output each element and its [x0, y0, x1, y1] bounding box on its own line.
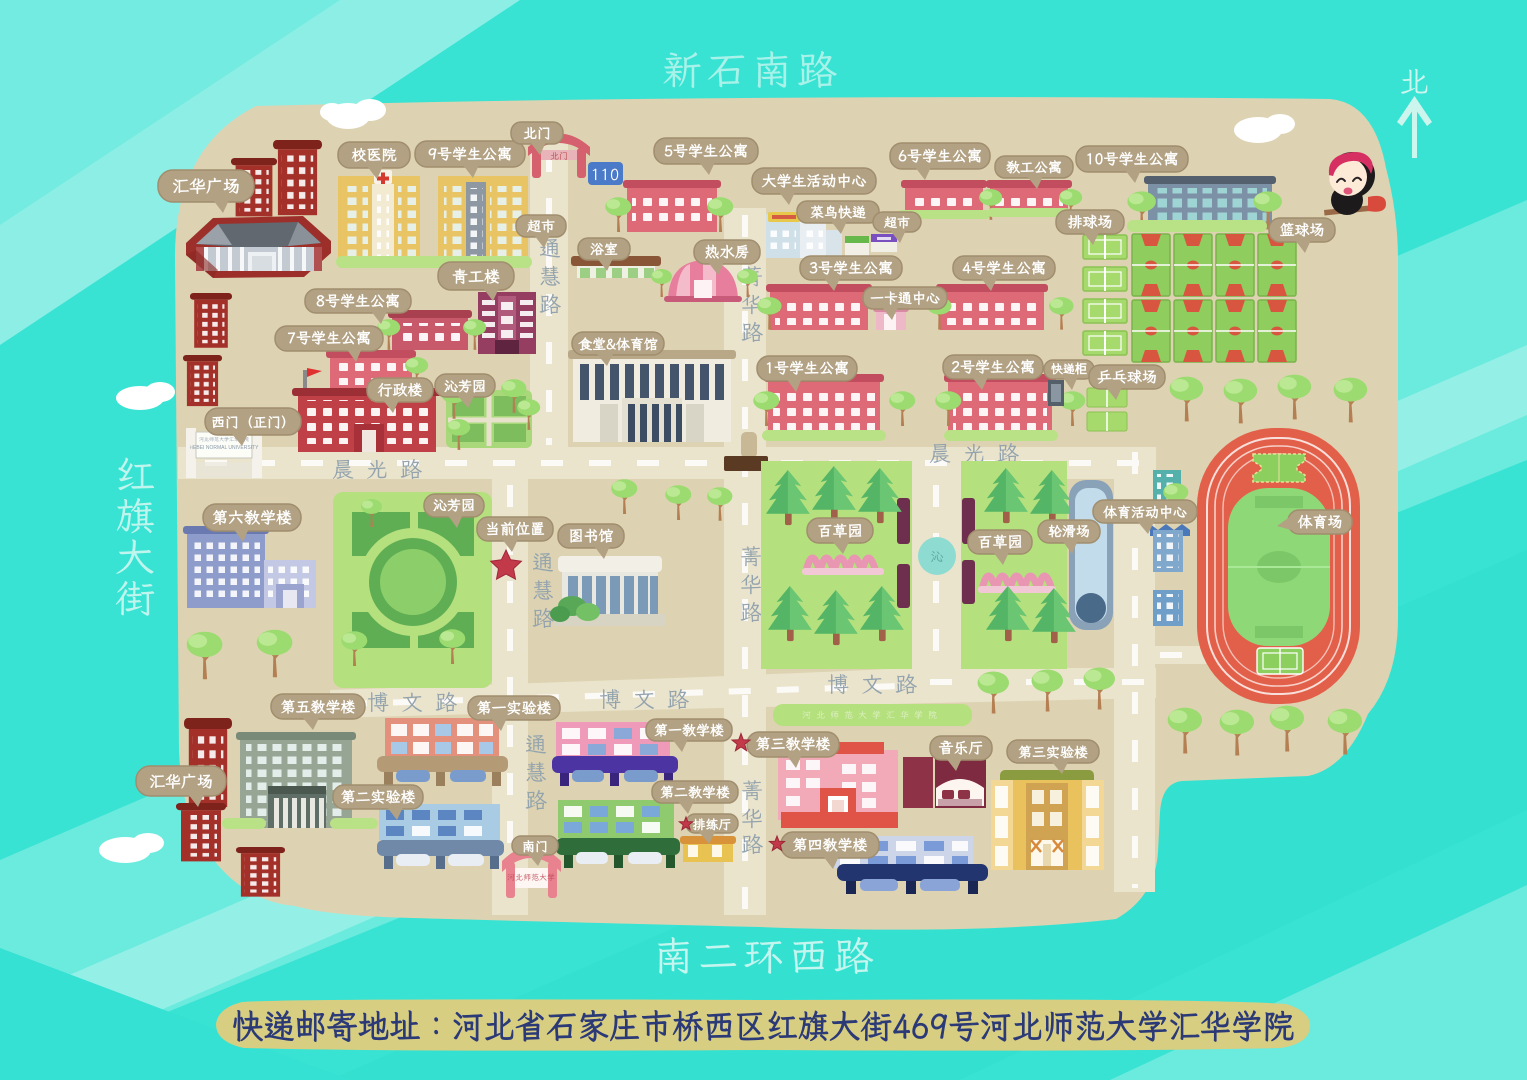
svg-text:排球场: 排球场 [1067, 213, 1112, 232]
svg-text:图书馆: 图书馆 [568, 527, 613, 546]
svg-text:百草园: 百草园 [977, 533, 1022, 552]
svg-text:6号学生公寓: 6号学生公寓 [898, 147, 982, 166]
svg-text:路: 路 [741, 830, 763, 859]
svg-text:第六教学楼: 第六教学楼 [212, 506, 292, 528]
svg-text:热水房: 热水房 [704, 243, 749, 262]
svg-text:音乐厅: 音乐厅 [938, 739, 983, 758]
svg-text:百草园: 百草园 [817, 522, 862, 541]
svg-text:浴室: 浴室 [590, 240, 618, 258]
svg-text:5号学生公寓: 5号学生公寓 [664, 142, 748, 161]
svg-text:乒乓球场: 乒乓球场 [1097, 368, 1157, 387]
svg-text:8号学生公寓: 8号学生公寓 [316, 292, 400, 311]
svg-text:校医院: 校医院 [351, 146, 396, 165]
svg-text:快递柜: 快递柜 [1051, 362, 1087, 377]
svg-text:当前位置: 当前位置 [485, 520, 545, 539]
svg-text:行政楼: 行政楼 [377, 381, 422, 400]
svg-text:南二环西路: 南二环西路 [654, 930, 879, 982]
svg-text:汇华广场: 汇华广场 [149, 770, 213, 792]
svg-text:一卡通中心: 一卡通中心 [870, 289, 940, 307]
svg-text:华: 华 [740, 570, 762, 599]
svg-text:华: 华 [741, 804, 763, 833]
svg-text:慧: 慧 [532, 576, 554, 605]
svg-text:河北师范大学汇华学院: 河北师范大学汇华学院 [802, 709, 942, 721]
svg-text:博文路: 博文路 [827, 670, 929, 699]
svg-text:2号学生公寓: 2号学生公寓 [951, 358, 1035, 377]
svg-text:汇华广场: 汇华广场 [172, 174, 240, 197]
svg-text:第一教学楼: 第一教学楼 [654, 721, 724, 739]
svg-text:河北师范大学: 河北师范大学 [507, 873, 555, 883]
svg-text:食堂&体育馆: 食堂&体育馆 [578, 335, 658, 353]
svg-text:菁: 菁 [740, 542, 762, 571]
svg-text:第三教学楼: 第三教学楼 [755, 735, 830, 754]
svg-text:第一实验楼: 第一实验楼 [476, 699, 551, 718]
svg-text:体育活动中心: 体育活动中心 [1103, 503, 1187, 521]
svg-text:路: 路 [539, 290, 561, 319]
svg-text:博文路: 博文路 [367, 688, 469, 717]
svg-text:快递邮寄地址：河北省石家庄市桥西区红旗大街469号河北师范大: 快递邮寄地址：河北省石家庄市桥西区红旗大街469号河北师范大学汇华学院 [232, 1003, 1294, 1048]
svg-text:9号学生公寓: 9号学生公寓 [428, 145, 512, 164]
svg-text:慧: 慧 [525, 758, 547, 787]
svg-text:路: 路 [532, 604, 554, 633]
svg-text:北门: 北门 [550, 150, 568, 162]
svg-text:青工楼: 青工楼 [452, 265, 500, 287]
svg-text:排练厅: 排练厅 [692, 816, 731, 833]
svg-text:10号学生公寓: 10号学生公寓 [1085, 150, 1178, 169]
svg-text:沁芳园: 沁芳园 [444, 377, 486, 395]
svg-text:轮滑场: 轮滑场 [1048, 522, 1090, 540]
svg-text:HEBEI NORMAL UNIVERSITY: HEBEI NORMAL UNIVERSITY [190, 445, 260, 451]
svg-text:体育场: 体育场 [1297, 513, 1342, 532]
svg-text:慧: 慧 [539, 262, 561, 291]
svg-text:沁芳园: 沁芳园 [433, 496, 475, 514]
svg-text:菁: 菁 [741, 776, 763, 805]
svg-text:第五教学楼: 第五教学楼 [280, 698, 355, 717]
svg-text:110: 110 [591, 163, 620, 185]
svg-text:新石南路: 新石南路 [662, 44, 842, 96]
svg-text:第二教学楼: 第二教学楼 [660, 783, 730, 801]
svg-text:7号学生公寓: 7号学生公寓 [287, 329, 371, 348]
svg-text:菜鸟快递: 菜鸟快递 [810, 203, 866, 221]
svg-text:篮球场: 篮球场 [1279, 221, 1324, 240]
svg-text:第三实验楼: 第三实验楼 [1018, 743, 1088, 761]
svg-text:第二实验楼: 第二实验楼 [340, 788, 415, 807]
svg-text:北: 北 [1399, 61, 1429, 101]
svg-text:第四教学楼: 第四教学楼 [792, 836, 867, 855]
svg-text:路: 路 [740, 598, 762, 627]
svg-text:北门: 北门 [523, 124, 551, 142]
svg-text:通: 通 [525, 730, 547, 759]
svg-text:1号学生公寓: 1号学生公寓 [765, 359, 849, 378]
svg-text:路: 路 [741, 318, 763, 347]
svg-text:超市: 超市 [884, 214, 910, 231]
svg-text:街: 街 [115, 572, 155, 624]
svg-text:教工公寓: 教工公寓 [1006, 158, 1062, 176]
svg-text:大学生活动中心: 大学生活动中心 [761, 172, 866, 191]
svg-text:南门: 南门 [522, 838, 548, 855]
svg-text:通: 通 [532, 548, 554, 577]
svg-text:晨光路: 晨光路 [332, 455, 434, 484]
svg-text:沁: 沁 [930, 548, 943, 565]
svg-text:西门（正门）: 西门（正门） [211, 413, 295, 431]
svg-text:路: 路 [525, 786, 547, 815]
svg-text:超市: 超市 [527, 217, 555, 235]
svg-text:博文路: 博文路 [599, 685, 701, 714]
svg-text:4号学生公寓: 4号学生公寓 [962, 259, 1046, 278]
svg-text:3号学生公寓: 3号学生公寓 [809, 259, 893, 278]
